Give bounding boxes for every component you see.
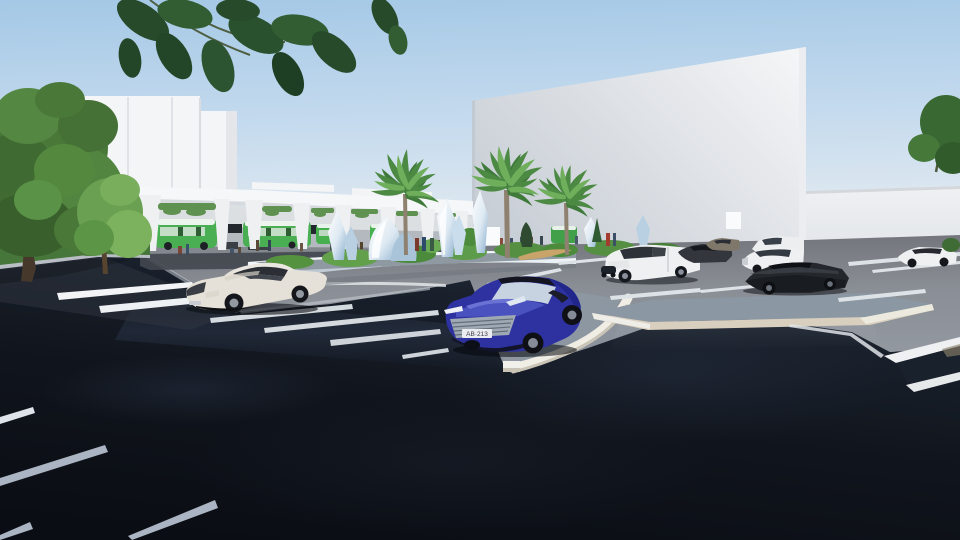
svg-text:AB·213: AB·213 bbox=[466, 331, 488, 338]
